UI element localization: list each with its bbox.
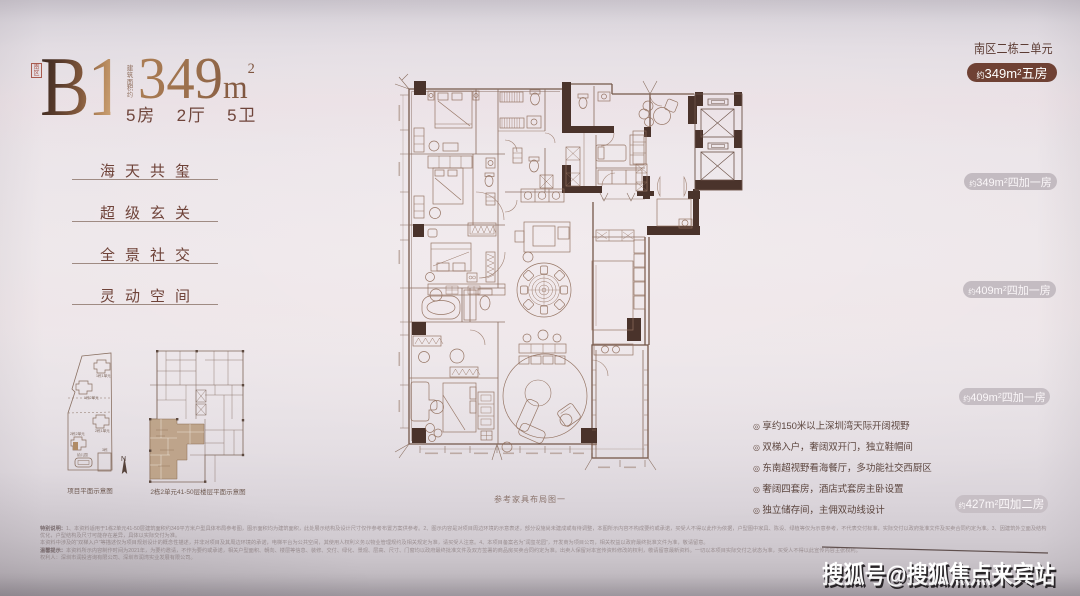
svg-text:2栋2单元: 2栋2单元: [70, 431, 85, 436]
svg-text:N: N: [121, 456, 126, 463]
svg-text:幼儿园: 幼儿园: [77, 452, 88, 457]
svg-text:1栋1单元: 1栋1单元: [96, 373, 111, 378]
svg-text:2栋1单元: 2栋1单元: [95, 428, 110, 433]
svg-text:1栋2单元: 1栋2单元: [84, 395, 99, 400]
svg-text:3栋: 3栋: [102, 447, 108, 452]
